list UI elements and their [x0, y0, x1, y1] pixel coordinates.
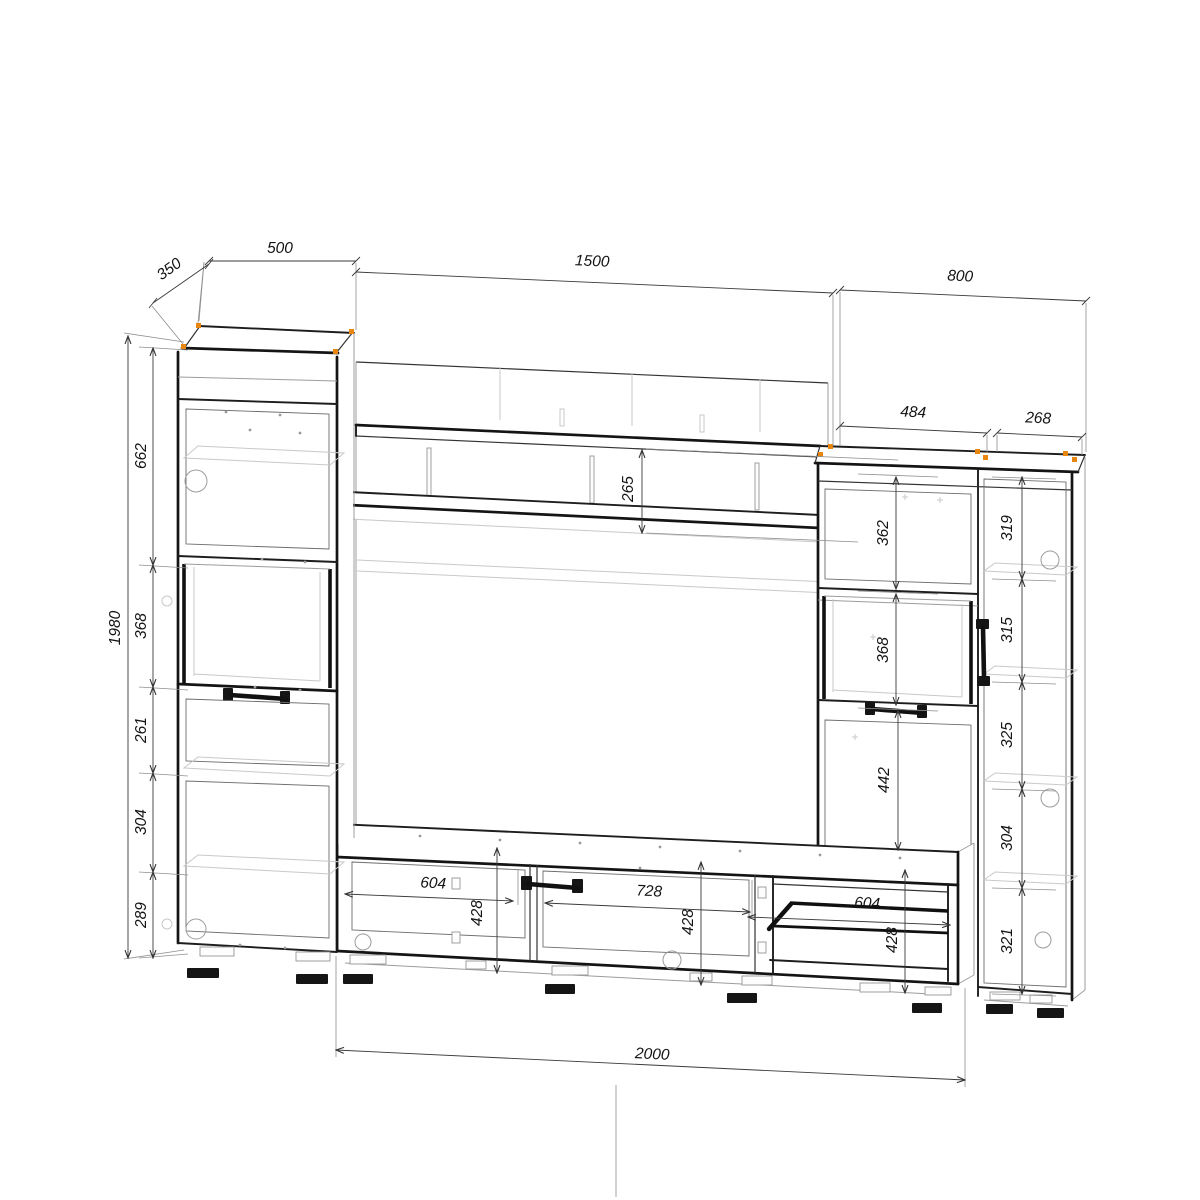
dim-right-side-section-2: 315 — [999, 617, 1016, 643]
dim-cabinet-right-width: 800 — [947, 267, 974, 285]
dim-cabinet-left-width: 500 — [267, 240, 293, 257]
dim-center-width: 1500 — [575, 252, 611, 271]
shelf-peg — [427, 448, 431, 496]
dim-shelf-gap: 265 — [620, 476, 637, 503]
dim-stand-middle-width: 728 — [636, 882, 663, 900]
dim-stand-left-height: 428 — [469, 900, 486, 926]
product-schematic-drawing: 350 500 1500 800 484 268 1980 662 368 26… — [0, 0, 1200, 1200]
stand-foot — [727, 993, 757, 1003]
dim-right-side-section-1: 319 — [999, 515, 1016, 541]
dim-stand-middle-height: 428 — [680, 909, 697, 935]
dim-left-section-2: 368 — [133, 613, 150, 639]
stand-foot — [343, 974, 373, 984]
cabinet-foot — [296, 974, 328, 984]
dim-left-section-5: 289 — [133, 902, 150, 929]
dim-stand-left-width: 604 — [420, 874, 447, 892]
dim-stand-niche-height: 428 — [884, 927, 901, 953]
left-cabinet — [162, 323, 354, 984]
shelf-peg — [755, 463, 759, 510]
stand-foot — [912, 1003, 942, 1013]
dim-left-section-1: 662 — [133, 443, 150, 469]
shelf-peg — [590, 456, 594, 503]
dim-right-side-width: 268 — [1024, 409, 1052, 427]
cabinet-foot — [187, 968, 219, 978]
cabinet-foot — [1037, 1008, 1064, 1018]
dim-stand-total-width: 2000 — [634, 1045, 671, 1064]
dim-right-door-section-1: 362 — [875, 520, 892, 546]
dim-right-door-width: 484 — [900, 403, 927, 421]
dim-cabinet-left-height: 1980 — [107, 610, 124, 645]
stand-foot — [545, 984, 575, 994]
dim-left-section-3: 261 — [133, 717, 150, 744]
dim-right-door-section-3: 442 — [876, 767, 893, 793]
cabinet-foot — [986, 1004, 1013, 1014]
schematic-page: СХЕМА ИЗДЕЛИЯ — [0, 0, 1200, 1200]
dim-stand-niche-width: 604 — [854, 894, 881, 912]
dim-left-section-4: 304 — [133, 809, 150, 835]
dim-right-side-section-5: 321 — [999, 928, 1016, 954]
dim-right-door-section-2: 368 — [875, 637, 892, 663]
dim-right-side-section-4: 304 — [999, 825, 1016, 851]
dim-right-side-section-3: 325 — [999, 722, 1016, 748]
